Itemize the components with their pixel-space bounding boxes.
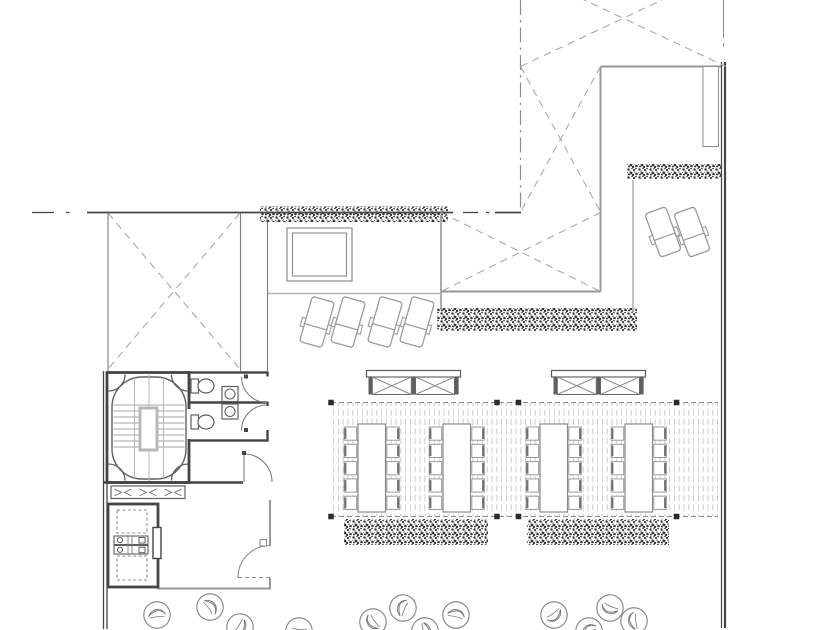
dining-table-3 bbox=[526, 424, 581, 512]
table-top bbox=[443, 424, 471, 512]
hedge-north bbox=[260, 207, 448, 223]
deck-post bbox=[516, 514, 522, 520]
storage-door-hinge bbox=[242, 451, 246, 455]
dining-table-1 bbox=[344, 424, 399, 512]
wall-cut-wc-door-top bbox=[266, 377, 270, 402]
elevator-door-jamb bbox=[153, 528, 161, 559]
floor-plan-drawing bbox=[0, 0, 840, 630]
pergola-column bbox=[554, 377, 558, 395]
dining-table-4 bbox=[611, 424, 666, 512]
pergola-column bbox=[412, 377, 416, 395]
hedge-middle bbox=[437, 308, 637, 331]
pergola-column bbox=[455, 377, 459, 395]
deck-post bbox=[494, 514, 500, 520]
toilet-bowl-top bbox=[198, 379, 214, 393]
deck-post bbox=[494, 400, 500, 406]
spa-outer bbox=[287, 228, 352, 281]
hedge-deck-left bbox=[344, 519, 488, 545]
deck-post bbox=[516, 400, 522, 406]
deck-post bbox=[674, 400, 680, 406]
pergola-column bbox=[369, 377, 373, 395]
wc-door-hinge-bottom bbox=[244, 428, 248, 432]
toilet-bowl-bottom bbox=[198, 415, 214, 429]
table-top bbox=[540, 424, 568, 512]
wall-cut-wc-door-bottom bbox=[266, 406, 270, 430]
toilet-tank-top bbox=[191, 379, 199, 393]
pergola-column bbox=[640, 377, 644, 395]
pergola-beam bbox=[367, 371, 461, 378]
deck-post bbox=[328, 514, 334, 520]
deck-post bbox=[674, 514, 680, 520]
floor-plan bbox=[0, 0, 840, 630]
stair-newel bbox=[140, 408, 157, 450]
hedge-upper-east bbox=[627, 164, 721, 179]
lobby-door-stop bbox=[260, 540, 267, 547]
wall-cut-stair-wc bbox=[187, 409, 191, 439]
hedge-deck-right bbox=[527, 519, 669, 545]
table-top bbox=[358, 424, 386, 512]
table-top bbox=[625, 424, 653, 512]
dining-table-2 bbox=[429, 424, 484, 512]
pergola-column bbox=[597, 377, 601, 395]
wc-door-hinge-top bbox=[244, 375, 248, 379]
toilet-tank-bottom bbox=[191, 415, 199, 429]
pergola-beam bbox=[552, 371, 646, 378]
deck-post bbox=[328, 400, 334, 406]
duct-shaft bbox=[703, 67, 719, 147]
